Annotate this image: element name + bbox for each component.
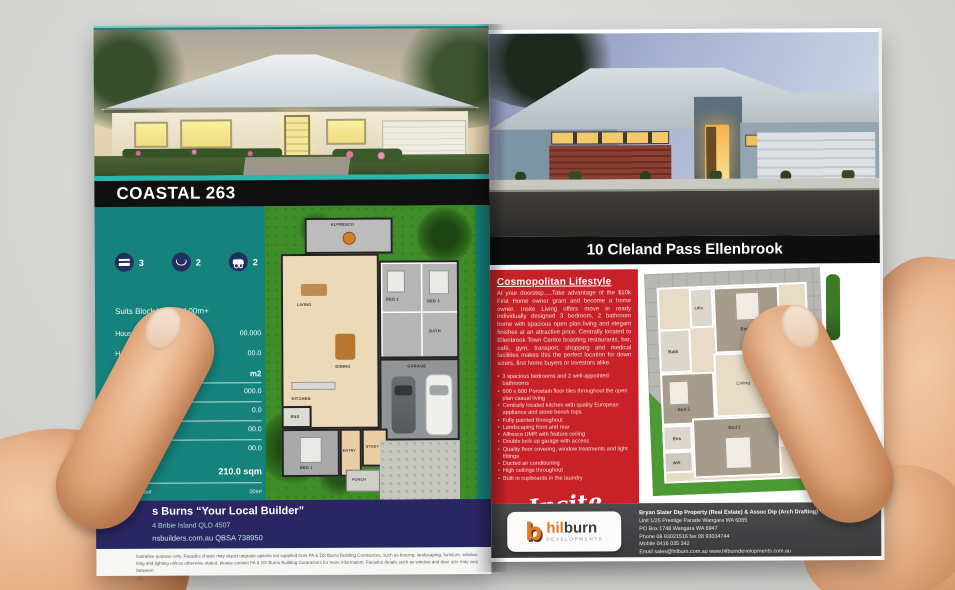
room-label: BATH — [429, 328, 441, 333]
hilburn-b-mark-icon: b — [525, 520, 542, 544]
right-title-banner: 10 Cleland Pass Ellenbrook — [490, 235, 880, 265]
bed-shape — [300, 437, 322, 463]
road — [489, 188, 879, 237]
room-ensuite: ENS — [282, 406, 312, 428]
left-floorplan-site: ALFRESCO LIVING DINING KITCHEN BED 2 — [265, 205, 478, 500]
row-value: 00.0 — [248, 426, 262, 433]
room-garage: GARAGE — [379, 358, 459, 440]
builder-name: s Burns “Your Local Builder” — [152, 505, 304, 518]
highlight-windows — [551, 131, 669, 145]
left-page: COASTAL 263 3 2 2 1 — [94, 24, 492, 574]
spec-cars: 2 — [229, 252, 258, 271]
room-label: ALFRESCO — [331, 222, 355, 227]
logo-burn: burn — [564, 520, 597, 537]
room-label: GARAGE — [407, 363, 426, 368]
feature-item: 600 x 600 Porcelain floor tiles througho… — [497, 388, 631, 403]
lifestyle-paragraph: At your doorstep.....Take advantage of t… — [497, 290, 631, 369]
feature-item: 3 spacious bedrooms and 2 well-appointed… — [497, 373, 631, 388]
bed-shape — [387, 270, 405, 292]
car-shape — [391, 376, 415, 433]
room-porch: PORCH — [346, 470, 380, 492]
driveway — [243, 157, 350, 176]
disclaimer-line: ype. — [136, 573, 486, 582]
disclaimer-text: lustrative purpose only. Facades shown m… — [136, 551, 486, 582]
bed-icon — [115, 253, 134, 272]
right-page-title: 10 Cleland Pass Ellenbrook — [587, 240, 783, 258]
room-label: DINING — [335, 364, 350, 369]
room-wir: WIR — [663, 450, 694, 473]
plan-driveway — [380, 440, 460, 499]
logo-hil: hil — [546, 520, 564, 537]
baths-count: 2 — [196, 257, 201, 267]
bedroom-wing: BED 2 BED 3 BATH — [379, 260, 460, 358]
right-house-photo — [489, 32, 880, 237]
feature-item: Built in cupboards in the laundry — [498, 475, 632, 483]
left-page-title: COASTAL 263 — [116, 183, 235, 203]
room-alfresco: ALFRESCO — [305, 218, 393, 254]
room-label: BED 2 — [386, 296, 399, 301]
photo-scene: COASTAL 263 3 2 2 1 — [0, 0, 955, 590]
room-bed1: Bed 1 — [692, 415, 782, 478]
left-title-banner: COASTAL 263 — [94, 179, 489, 207]
dining-table-shape — [335, 334, 355, 360]
row-value: 00.000 — [240, 330, 261, 337]
bed-shape — [429, 270, 449, 294]
window-shape — [326, 119, 366, 145]
room-label: BED 3 — [427, 298, 440, 303]
spec-baths: 2 — [172, 253, 201, 272]
room-bath: Bath — [658, 329, 692, 374]
insite-logo: Insite L I V I N G — [498, 491, 632, 504]
front-door — [284, 115, 310, 157]
agent-email-web: Email sales@hilburn.com.au www.hilburnde… — [639, 548, 877, 557]
hedge-shape — [826, 274, 840, 340]
bed-shape — [668, 381, 689, 406]
builder-address: 4 Bribie Island QLD 4507 — [152, 522, 230, 529]
window-shape — [180, 119, 232, 148]
hilburn-logotype: hilburn DEVELOPMENTS — [546, 521, 603, 543]
bed-shape — [725, 436, 752, 469]
lifestyle-heading: Cosmopolitan Lifestyle — [497, 276, 631, 288]
room-bed1: BED 1 — [282, 429, 340, 477]
builder-website: nsbuilders.com.au QBSA 738950 — [152, 533, 263, 543]
row-value: 0.0 — [252, 407, 262, 414]
disclaimer-strip: lustrative purpose only. Facades shown m… — [96, 547, 491, 576]
spec-beds: 3 — [115, 253, 144, 272]
lifestyle-panel: Cosmopolitan Lifestyle At your doorstep.… — [490, 269, 639, 504]
kitchen-bench-shape — [291, 382, 335, 390]
brochure-spread: COASTAL 263 3 2 2 1 — [94, 22, 885, 574]
cars-count: 2 — [253, 257, 258, 267]
builder-footer-band: s Burns “Your Local Builder” 4 Bribie Is… — [96, 499, 491, 549]
room-label: KITCHEN — [292, 396, 311, 401]
bath-icon — [172, 253, 191, 272]
car-icon — [229, 252, 248, 271]
row-value: 00m² — [249, 489, 262, 495]
room-label: ENS — [291, 414, 300, 419]
window-shape — [134, 122, 168, 148]
logo-developments: DEVELOPMENTS — [546, 538, 603, 543]
sofa-shape — [301, 284, 327, 296]
room-label: PORCH — [352, 478, 366, 482]
room-label: ENTRY — [343, 449, 356, 453]
room-ens: Ens — [662, 425, 693, 452]
feature-item: Quality floor covering, window treatment… — [498, 446, 632, 461]
insite-wordmark: Insite — [527, 488, 604, 504]
row-value: 000.0 — [244, 388, 262, 395]
room-laundry: Ldry — [689, 288, 715, 329]
hilburn-logo-box: b hilburn DEVELOPMENTS — [507, 511, 621, 552]
room-label: STUDY — [366, 445, 379, 449]
tree-shape — [417, 207, 473, 263]
room-label: BED 1 — [300, 465, 313, 470]
outdoor-table-shape — [343, 232, 356, 245]
beds-count: 3 — [139, 257, 144, 267]
row-value: 00.0 — [248, 445, 262, 452]
car-shape — [425, 374, 452, 435]
row-value: 00.0 — [248, 350, 262, 357]
feature-item: Centrally located kitchen with quality E… — [498, 402, 632, 417]
feature-list: 3 spacious bedrooms and 2 well-appointed… — [497, 373, 632, 483]
room-label: LIVING — [297, 302, 312, 307]
left-house-photo — [94, 28, 490, 176]
room-open-plan: LIVING DINING KITCHEN — [281, 254, 380, 430]
